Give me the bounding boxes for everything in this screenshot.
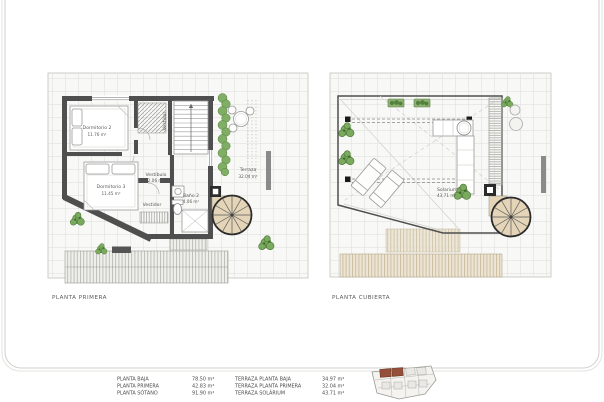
highlighted-lot <box>380 368 392 377</box>
legend-value: 78.50 m² <box>192 377 214 383</box>
privacy-wall <box>266 151 271 190</box>
legend-label: TERRAZA SOLÁRIUM <box>234 390 285 397</box>
floorplan-drawing: Dormitorio 2 11.76 m² Dormitorio 3 11.45… <box>0 0 604 402</box>
legend-label: TERRAZA PLANTA PRIMERA <box>234 384 302 390</box>
utility-box-symbol <box>210 186 221 197</box>
floorplan-sheet: Dormitorio 2 11.76 m² Dormitorio 3 11.45… <box>0 0 604 402</box>
privacy-wall <box>541 156 546 193</box>
legend-label: PLANTA PRIMERA <box>117 384 160 390</box>
utility-box-symbol <box>484 184 496 196</box>
plan-planta-cubierta: Solarium 43.71 m² <box>330 73 551 277</box>
room-area-vestibulo: 2.06 m² <box>148 178 165 183</box>
plan-planta-primera: Dormitorio 2 11.76 m² Dormitorio 3 11.45… <box>48 73 308 283</box>
room-label-vestibulo: Vestíbulo <box>146 171 167 178</box>
area-legend: PLANTA BAJA 78.50 m² PLANTA PRIMERA 42.8… <box>117 377 344 397</box>
wardrobe-hatch-bottom <box>140 212 168 223</box>
legend-label: TERRAZA PLANTA BAJA <box>234 377 292 383</box>
highlighted-lot <box>392 367 404 376</box>
legend-value: 91.90 m² <box>192 391 214 397</box>
room-label-terraza: Terraza <box>239 167 257 173</box>
post-symbol <box>345 177 351 183</box>
room-area-dormitorio2: 11.76 m² <box>87 132 106 137</box>
legend-value: 43.71 m² <box>322 391 344 397</box>
legend-label: PLANTA BAJA <box>117 377 149 383</box>
room-label-dormitorio2: Dormitorio 2 <box>83 125 112 131</box>
legend-label: PLANTA SÓTANO <box>117 390 158 397</box>
plan-title-primera: PLANTA PRIMERA <box>52 295 107 301</box>
planter-box-symbol <box>414 99 430 107</box>
bench-symbol <box>112 247 131 254</box>
legend-value: 32.04 m² <box>322 384 344 390</box>
room-area-solarium: 43.71 m² <box>437 193 456 198</box>
spiral-staircase-symbol <box>212 196 252 235</box>
plan-title-cubierta: PLANTA CUBIERTA <box>332 295 390 301</box>
planter-box-symbol <box>388 99 404 107</box>
room-label-vestidor-top: Vestidor <box>162 112 168 131</box>
room-label-dormitorio3: Dormitorio 3 <box>97 184 126 190</box>
pergola-slats <box>489 98 502 185</box>
room-area-bano2: 4.06 m² <box>183 199 200 204</box>
room-area-terraza: 32.04 m² <box>238 174 257 179</box>
legend-value: 34.97 m² <box>322 377 344 383</box>
post-symbol <box>345 117 351 123</box>
stairs-symbol <box>174 101 208 154</box>
site-plan-thumbnail <box>372 366 436 399</box>
legend-value: 42.83 m² <box>192 384 214 390</box>
room-label-vestidor-bottom: Vestidor <box>143 202 162 208</box>
room-labels-planta-cubierta: Solarium 43.71 m² <box>437 187 458 198</box>
room-area-dormitorio3: 11.45 m² <box>101 191 120 196</box>
